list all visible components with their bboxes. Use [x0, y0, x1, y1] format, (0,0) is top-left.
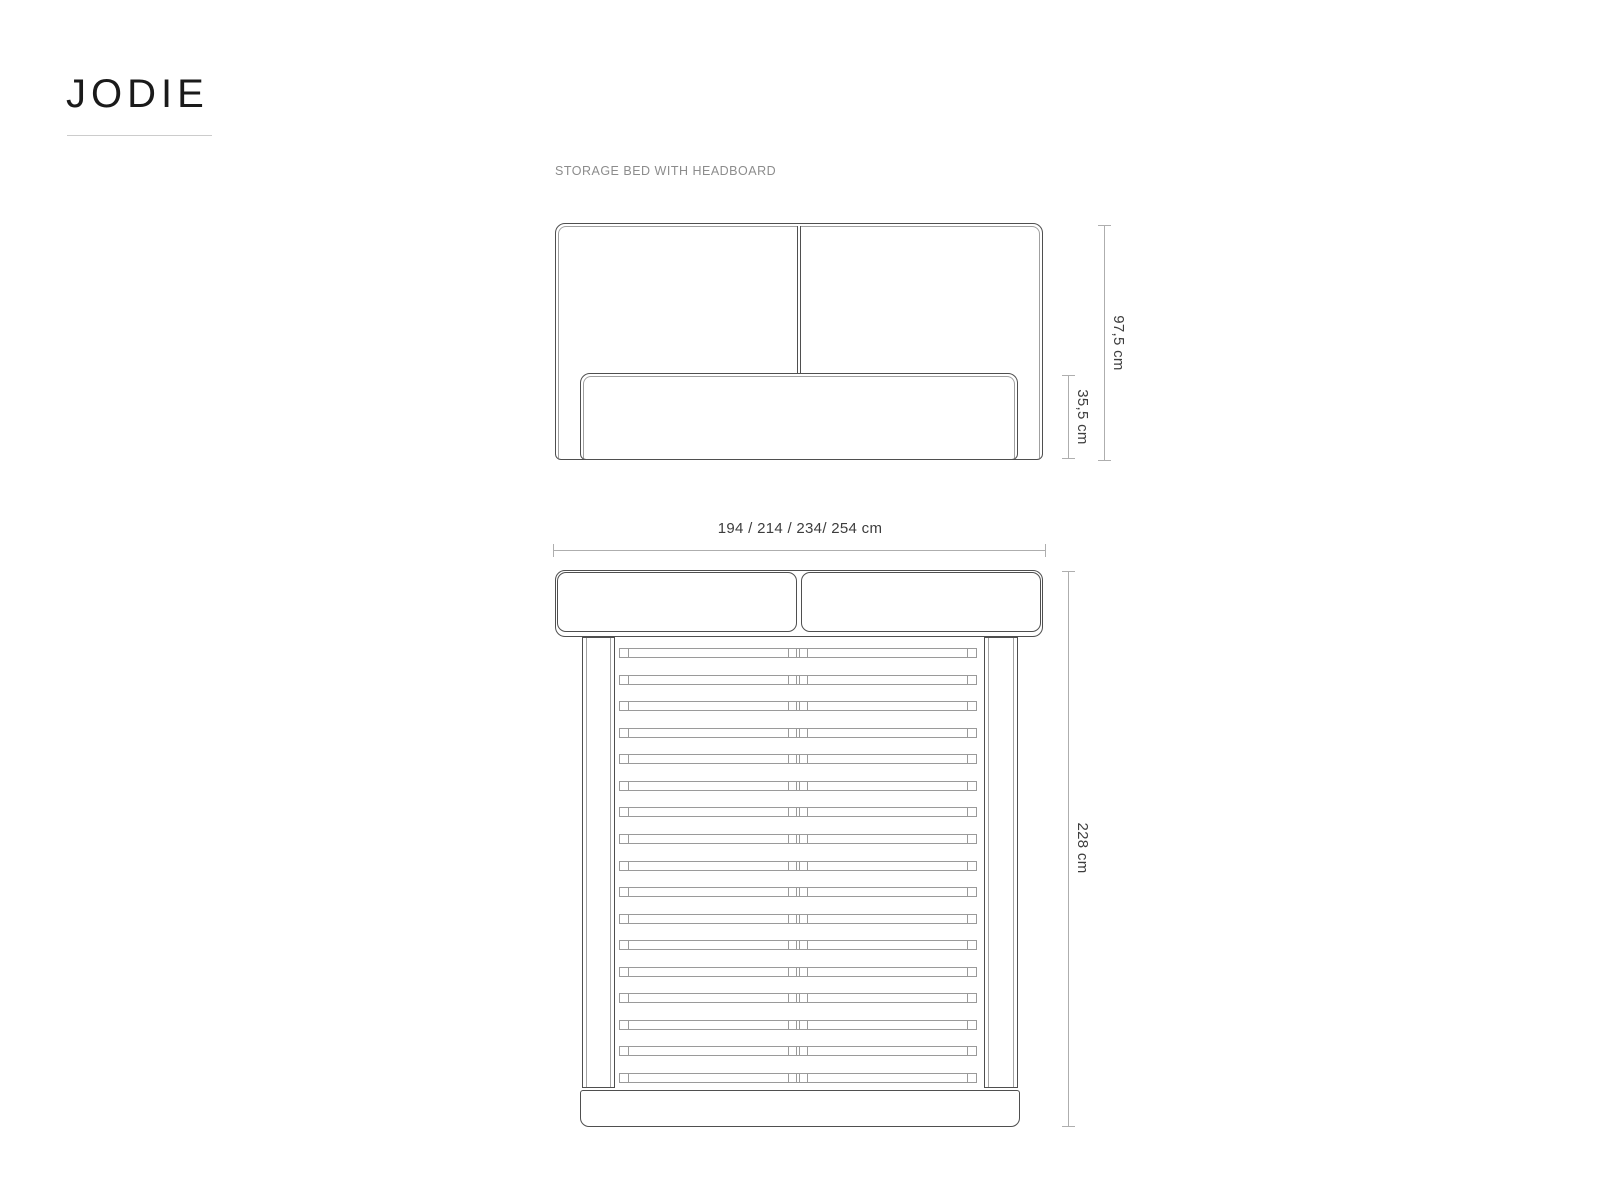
dim-length-label: 228 cm	[1074, 823, 1091, 874]
headboard-panel-right	[801, 572, 1041, 632]
dim-length-cap-top	[1062, 571, 1075, 572]
dim-width-cap-left	[553, 544, 554, 557]
slat	[619, 834, 977, 844]
bed-frame-front	[580, 373, 1018, 460]
drawing-subtitle: STORAGE BED WITH HEADBOARD	[555, 164, 776, 178]
headboard-front-seam	[797, 226, 801, 373]
dim-width-cap-right	[1045, 544, 1046, 557]
side-rail-right	[984, 637, 1018, 1088]
slat	[619, 993, 977, 1003]
dim-total-height-cap-bottom	[1098, 460, 1111, 461]
dim-width-label: 194 / 214 / 234/ 254 cm	[718, 520, 883, 537]
slat	[619, 967, 977, 977]
slat	[619, 701, 977, 711]
dim-width-line	[553, 550, 1046, 551]
dim-total-height-cap-top	[1098, 225, 1111, 226]
bed-frame-front-stitch-line	[583, 376, 1015, 458]
side-rail-right-inner-line	[988, 638, 1014, 1087]
dim-frame-height-label: 35,5 cm	[1074, 389, 1091, 444]
slat	[619, 1073, 977, 1083]
dim-frame-height-cap-bottom	[1062, 458, 1075, 459]
slat	[619, 648, 977, 658]
slat	[619, 861, 977, 871]
slat	[619, 887, 977, 897]
slat	[619, 940, 977, 950]
headboard-panel-left	[557, 572, 797, 632]
side-rail-left-inner-line	[586, 638, 611, 1087]
slat	[619, 914, 977, 924]
slat	[619, 1046, 977, 1056]
footboard	[580, 1090, 1020, 1127]
dim-frame-height-cap-top	[1062, 375, 1075, 376]
slat	[619, 675, 977, 685]
slat	[619, 728, 977, 738]
side-rail-left	[582, 637, 615, 1088]
page-title: JODIE	[66, 70, 209, 118]
slat-grid	[619, 648, 977, 1083]
slat	[619, 807, 977, 817]
brand-underline	[67, 135, 212, 136]
slat	[619, 754, 977, 764]
dim-length-cap-bottom	[1062, 1126, 1075, 1127]
dim-total-height-line	[1104, 225, 1105, 461]
slat	[619, 781, 977, 791]
dim-total-height-label: 97,5 cm	[1110, 315, 1127, 370]
slat	[619, 1020, 977, 1030]
dim-length-line	[1068, 571, 1069, 1127]
dim-frame-height-line	[1068, 375, 1069, 459]
